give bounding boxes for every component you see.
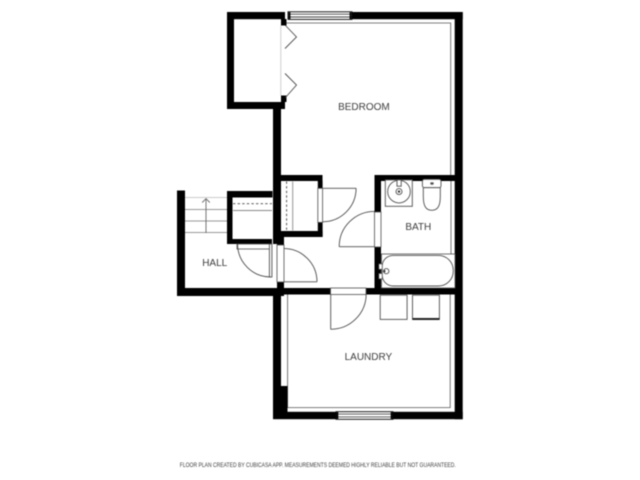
- svg-text:FLOOR PLAN CREATED BY CUBICASA: FLOOR PLAN CREATED BY CUBICASA APP. MEAS…: [180, 463, 456, 469]
- svg-text:BATH: BATH: [405, 222, 431, 233]
- svg-text:BEDROOM: BEDROOM: [338, 102, 390, 113]
- svg-text:LAUNDRY: LAUNDRY: [345, 352, 393, 363]
- svg-text:HALL: HALL: [202, 258, 227, 269]
